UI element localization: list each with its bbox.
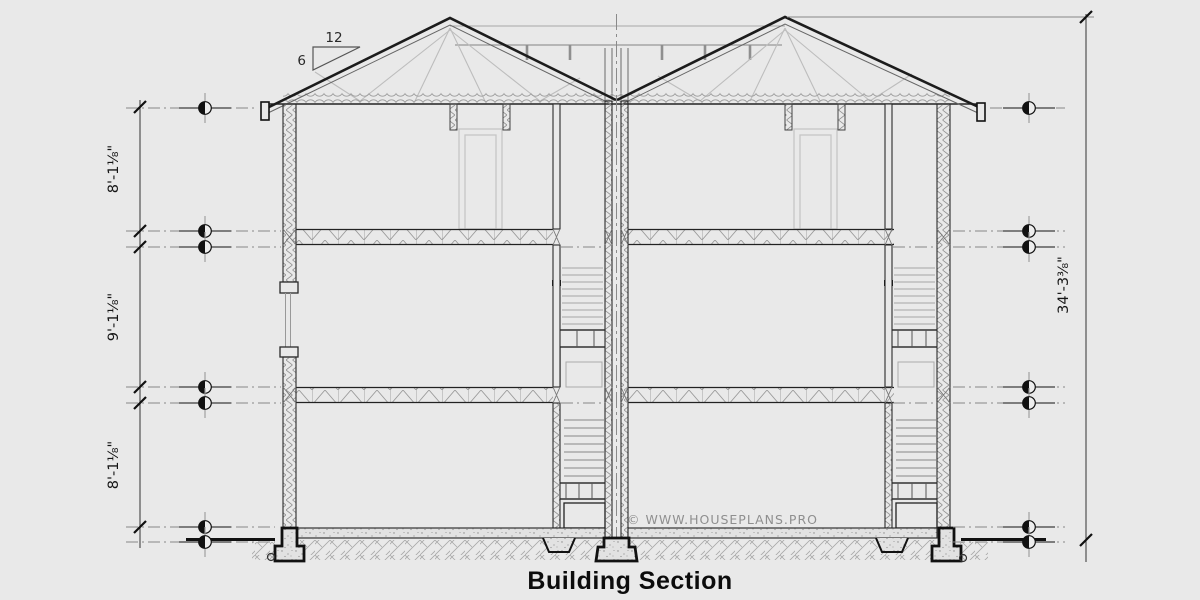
drawing-title: Building Section <box>527 567 732 595</box>
watermark-text: © WWW.HOUSEPLANS.PRO <box>627 512 818 527</box>
dim-overall-height: 34'-3⅜" <box>1056 256 1072 314</box>
pitch-run-label: 12 <box>325 30 342 46</box>
right-slab <box>628 528 937 538</box>
left-slab <box>296 528 605 538</box>
left-stair-footing <box>543 538 575 552</box>
building-section-drawing: 8'-1⅛" 9'-1⅛" 8'-1⅛" 34'-3⅜" 12 6 © WWW.… <box>0 0 1200 600</box>
right-stair-footing <box>876 538 908 552</box>
dim-upper-storey: 8'-1⅛" <box>106 145 122 193</box>
pitch-rise-label: 6 <box>297 53 306 69</box>
dim-lower-storey: 8'-1⅛" <box>106 441 122 489</box>
building-section-sheet: 8'-1⅛" 9'-1⅛" 8'-1⅛" 34'-3⅜" 12 6 © WWW.… <box>0 0 1200 600</box>
dim-main-storey: 9'-1⅛" <box>106 293 122 341</box>
